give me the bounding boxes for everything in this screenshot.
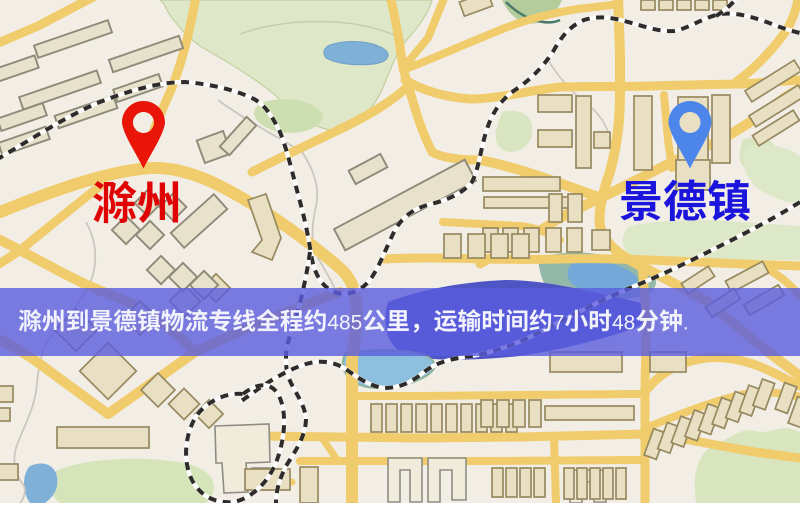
svg-text:7: 7	[553, 312, 565, 335]
svg-text:48: 48	[612, 312, 635, 335]
svg-text:.: .	[683, 312, 689, 335]
svg-text:485: 485	[327, 312, 362, 335]
